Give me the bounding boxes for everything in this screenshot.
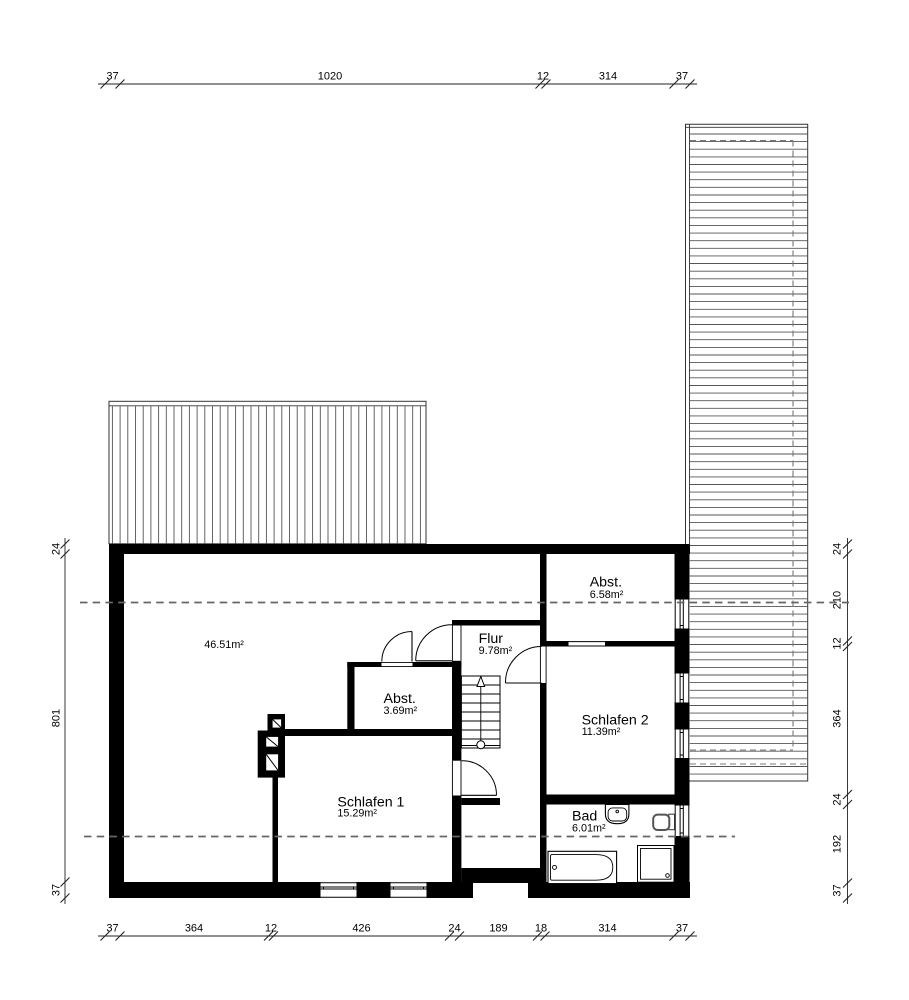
svg-text:9.78m²: 9.78m² <box>479 645 513 657</box>
svg-text:12: 12 <box>265 923 277 935</box>
svg-text:24: 24 <box>832 543 844 555</box>
svg-text:37: 37 <box>51 884 63 896</box>
svg-text:11.39m²: 11.39m² <box>582 726 621 738</box>
svg-text:12: 12 <box>537 71 549 83</box>
svg-text:37: 37 <box>676 923 688 935</box>
svg-text:37: 37 <box>832 884 844 896</box>
svg-text:426: 426 <box>352 923 370 935</box>
svg-text:364: 364 <box>185 923 203 935</box>
svg-text:189: 189 <box>489 923 507 935</box>
svg-text:24: 24 <box>832 793 844 805</box>
svg-text:37: 37 <box>106 923 118 935</box>
svg-text:18: 18 <box>535 923 547 935</box>
svg-text:46.51m²: 46.51m² <box>204 639 244 651</box>
svg-text:15.29m²: 15.29m² <box>337 808 377 820</box>
svg-text:24: 24 <box>448 923 460 935</box>
svg-text:6.01m²: 6.01m² <box>572 823 606 835</box>
svg-text:210: 210 <box>832 591 844 609</box>
svg-text:314: 314 <box>598 923 616 935</box>
svg-text:12: 12 <box>832 637 844 649</box>
svg-text:24: 24 <box>51 543 63 555</box>
svg-text:37: 37 <box>676 71 688 83</box>
svg-text:6.58m²: 6.58m² <box>590 589 624 601</box>
svg-text:364: 364 <box>832 709 844 727</box>
svg-text:1020: 1020 <box>318 71 342 83</box>
svg-text:192: 192 <box>832 835 844 853</box>
svg-text:37: 37 <box>106 71 118 83</box>
svg-text:801: 801 <box>51 709 63 727</box>
svg-text:314: 314 <box>599 71 617 83</box>
svg-text:3.69m²: 3.69m² <box>384 705 418 717</box>
